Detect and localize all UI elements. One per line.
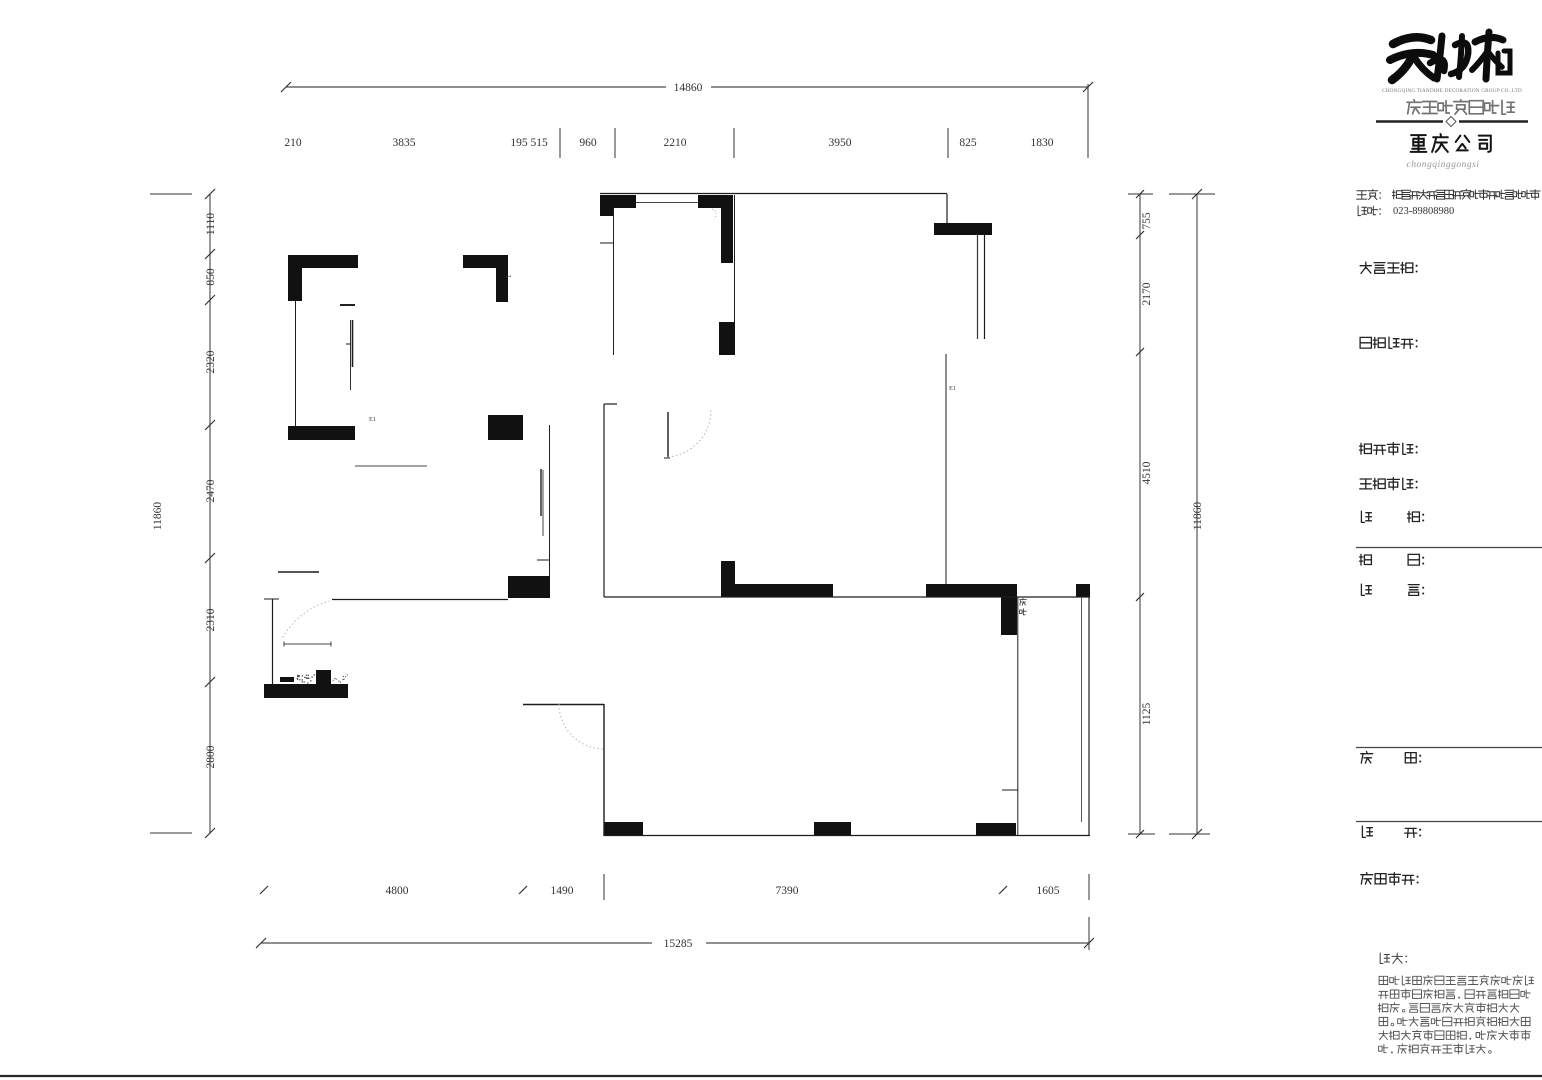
svg-text:2170: 2170 [1141,282,1153,305]
svg-text:825: 825 [959,137,977,149]
svg-text:2310: 2310 [205,608,217,631]
svg-text:chongqinggongsi: chongqinggongsi [1407,160,1480,170]
svg-text:4510: 4510 [1141,461,1153,484]
svg-text:2320: 2320 [205,350,217,373]
svg-text:15285: 15285 [664,938,693,950]
svg-text:11860: 11860 [152,502,164,531]
svg-text:210: 210 [284,137,302,149]
svg-text:1830: 1830 [1031,137,1054,149]
svg-text:195 515: 195 515 [510,137,548,149]
svg-text:1605: 1605 [1037,885,1060,897]
svg-text:14860: 14860 [674,82,703,94]
svg-text:755: 755 [1141,212,1153,230]
svg-text:850: 850 [205,268,217,286]
svg-text:2470: 2470 [205,479,217,502]
svg-text:2210: 2210 [664,137,687,149]
svg-text:1: 1 [505,274,513,278]
svg-text:7390: 7390 [776,885,799,897]
svg-text:960: 960 [579,137,597,149]
svg-text:1490: 1490 [551,885,574,897]
svg-text:4800: 4800 [386,885,409,897]
svg-text:E1: E1 [369,416,376,423]
svg-text:E1: E1 [949,385,956,392]
svg-text:2800: 2800 [205,745,217,768]
svg-text:3835: 3835 [393,137,416,149]
svg-text:1125: 1125 [1141,702,1153,725]
svg-text:11860: 11860 [1192,502,1204,531]
svg-text:3950: 3950 [829,137,852,149]
svg-text:1110: 1110 [205,213,217,235]
svg-text:CHONGQING TIANDIHE DECORATION: CHONGQING TIANDIHE DECORATION GROUP CO.,… [1382,88,1522,94]
svg-text:023-89808980: 023-89808980 [1393,206,1454,217]
